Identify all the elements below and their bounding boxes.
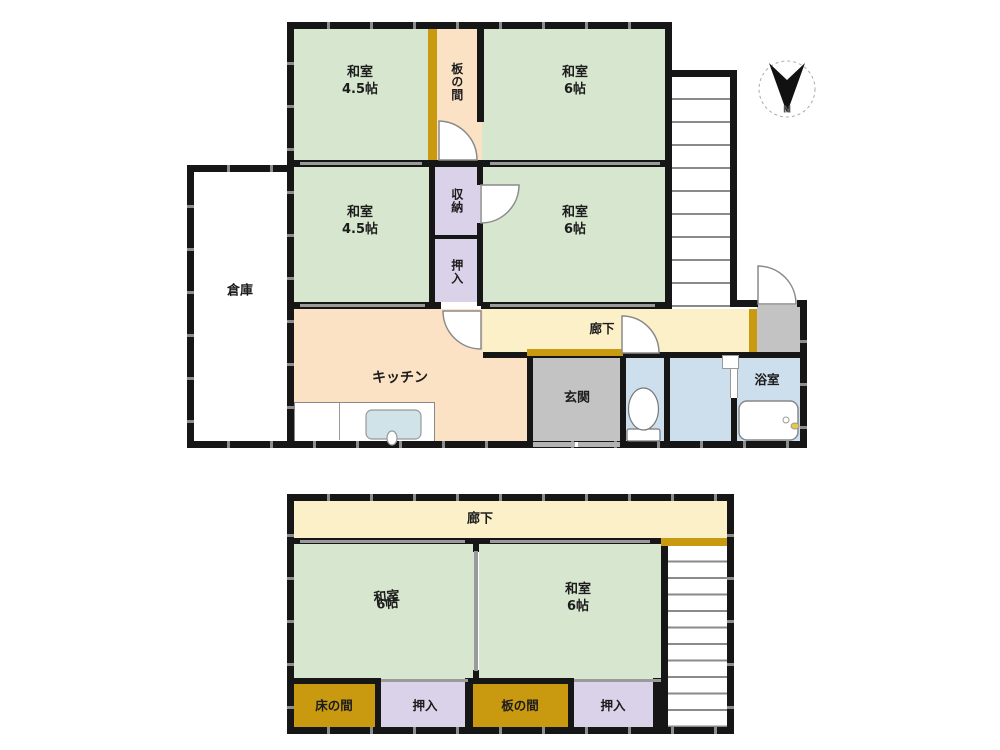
room-size: 6帖	[565, 599, 591, 616]
stairs-threshold	[661, 538, 727, 546]
stairs-upper	[672, 77, 730, 307]
wall	[287, 22, 294, 448]
room-size: 4.5帖	[342, 222, 378, 239]
room-size: 6帖	[562, 82, 588, 99]
room-name: 和室	[562, 205, 588, 220]
room-label-shuno: 収納	[448, 188, 464, 214]
wall	[187, 165, 194, 448]
room-name: 和室	[565, 582, 591, 597]
room-name: 浴室	[754, 372, 779, 387]
wall	[287, 727, 734, 734]
kitchen-counter-divider	[339, 403, 340, 440]
wall	[477, 22, 484, 122]
sliding-partition	[490, 540, 650, 543]
room-name: 押入	[412, 698, 437, 713]
sliding-partition	[300, 304, 425, 307]
room-souko	[192, 170, 289, 443]
floor-plan: 和室 4.5帖 板の間 和室 6帖 和室 4.5帖 収納 押入 和室 6帖 倉庫…	[0, 0, 1000, 750]
genkan-threshold	[527, 349, 623, 356]
room-name: 和室	[347, 65, 373, 80]
room-label-hallway-lower: 廊下	[467, 512, 493, 529]
room-name: 押入	[600, 698, 625, 713]
room-toilet	[623, 354, 667, 443]
sliding-partition	[490, 162, 660, 165]
room-label-oshiire-l: 押入	[412, 698, 437, 714]
room-label-washitsu-w: 和室 4.5帖	[342, 205, 378, 239]
room-name: 押入	[450, 259, 464, 285]
side-porch	[757, 305, 801, 354]
room-name: 廊下	[467, 512, 493, 527]
wall	[665, 22, 672, 309]
wall	[527, 352, 533, 448]
room-name: 倉庫	[227, 284, 253, 299]
room-hallway-upper	[483, 309, 749, 354]
wall	[664, 352, 670, 448]
room-size: 4.5帖	[342, 82, 378, 99]
wall	[287, 494, 734, 501]
room-name: 和室	[347, 205, 373, 220]
room-label-oshiire: 押入	[448, 259, 464, 285]
wall	[661, 546, 668, 727]
room-label-washitsu-e: 和室 6帖	[562, 205, 588, 239]
room-name: 床の間	[315, 698, 353, 713]
room-label-washitsu-r: 和室 6帖	[565, 582, 591, 616]
genkan-entrance-door-gap	[575, 442, 578, 447]
wall	[730, 70, 737, 307]
room-label-washitsu-ne: 和室 6帖	[562, 65, 588, 99]
wall	[477, 160, 483, 185]
room-hallway-lower	[294, 501, 727, 541]
room-name: 板の間	[450, 63, 464, 102]
room-label-hallway-upper: 廊下	[589, 321, 614, 337]
room-name: キッチン	[372, 370, 428, 386]
washroom-fixture	[722, 355, 739, 369]
wall	[473, 670, 479, 681]
room-label-oshiire-r: 押入	[600, 698, 625, 714]
wall	[429, 235, 483, 239]
compass-letter: N	[783, 105, 791, 116]
room-label-itanoma-lower: 板の間	[501, 698, 539, 714]
room-label-itanoma: 板の間	[448, 63, 464, 102]
sliding-partition	[381, 679, 468, 682]
wall	[620, 352, 626, 448]
room-name: 玄関	[564, 391, 590, 406]
room-name: 和室	[562, 65, 588, 80]
wall	[287, 678, 381, 684]
wall	[665, 70, 737, 77]
room-label-kitchen: キッチン	[372, 369, 428, 387]
wall	[800, 300, 807, 448]
door-arc-porch	[758, 266, 796, 304]
room-label-washitsu-nw: 和室 4.5帖	[342, 65, 378, 99]
room-name: 廊下	[589, 321, 614, 336]
room-size: 6帖	[562, 222, 588, 239]
wall	[727, 494, 734, 734]
wall	[287, 494, 294, 734]
wall	[468, 678, 574, 684]
itanoma-threshold	[428, 27, 437, 163]
sliding-partition	[490, 304, 655, 307]
hallway-threshold-right	[749, 309, 757, 354]
room-label-washitsu-l: 和室 6帖	[373, 593, 400, 609]
room-divider	[474, 551, 478, 671]
wall	[568, 678, 574, 734]
sliding-partition	[300, 540, 465, 543]
wall	[187, 165, 294, 172]
sliding-partition	[300, 162, 422, 165]
room-name: 収納	[450, 188, 464, 214]
room-label-genkan: 玄関	[564, 391, 590, 408]
room-label-bathroom: 浴室	[754, 372, 779, 388]
room-label-souko: 倉庫	[227, 284, 253, 301]
wall	[375, 678, 381, 734]
wall	[187, 441, 807, 448]
room-name: 板の間	[501, 698, 539, 713]
room-size: 6帖	[374, 600, 401, 609]
kitchen-door-opening	[441, 302, 481, 309]
room-bathroom	[734, 354, 801, 443]
compass-north-label: N	[783, 104, 791, 117]
wall	[465, 678, 473, 734]
sliding-partition	[574, 679, 661, 682]
wall	[653, 678, 662, 734]
room-label-tokonoma: 床の間	[315, 698, 353, 714]
stairs-lower	[668, 546, 727, 727]
kitchen-counter	[294, 402, 435, 443]
